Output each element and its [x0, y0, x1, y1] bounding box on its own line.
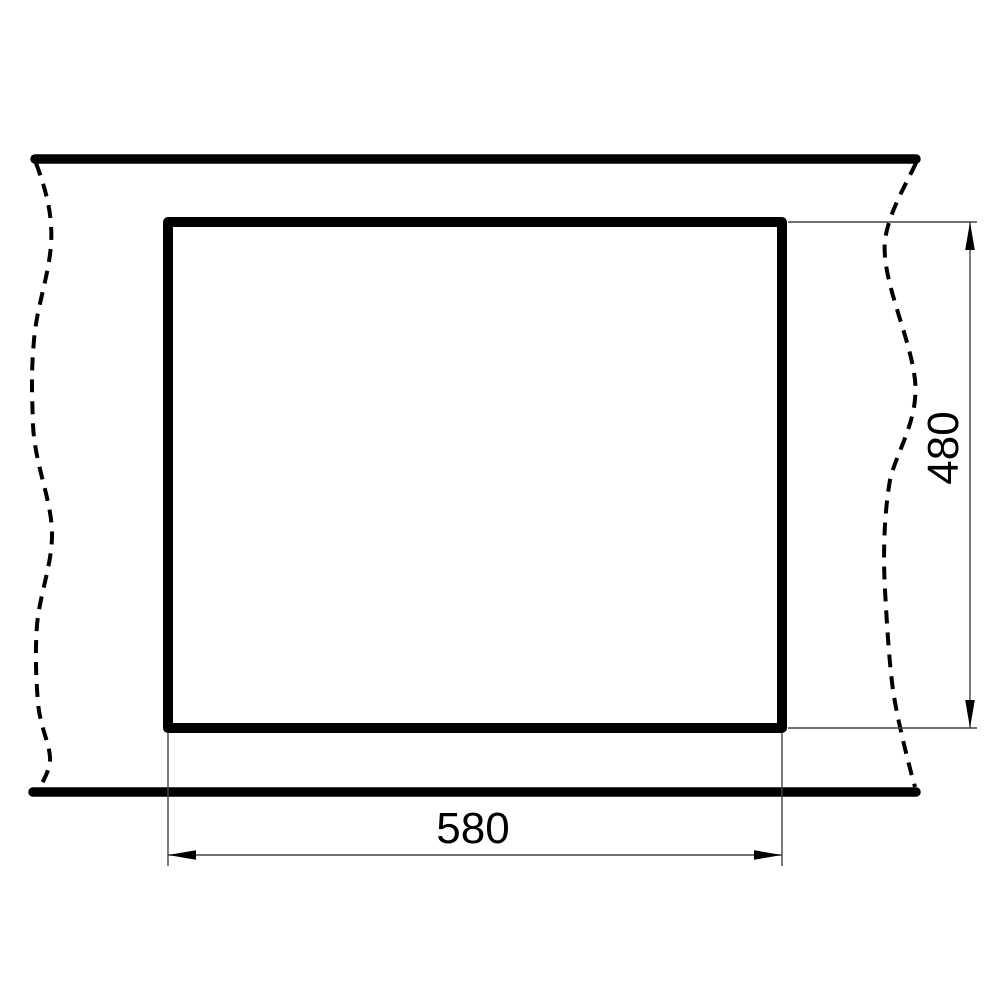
width-dimension-label: 580 [436, 807, 509, 851]
arrow-right-icon [754, 850, 782, 860]
right-break-line [884, 163, 916, 787]
left-break-line [32, 163, 52, 790]
cutout-rectangle [168, 222, 782, 728]
arrow-down-icon [965, 700, 975, 728]
arrow-up-icon [965, 222, 975, 250]
arrow-left-icon [168, 850, 196, 860]
height-dimension-label: 480 [922, 411, 966, 484]
technical-drawing-canvas: 580 480 [0, 0, 1000, 1000]
